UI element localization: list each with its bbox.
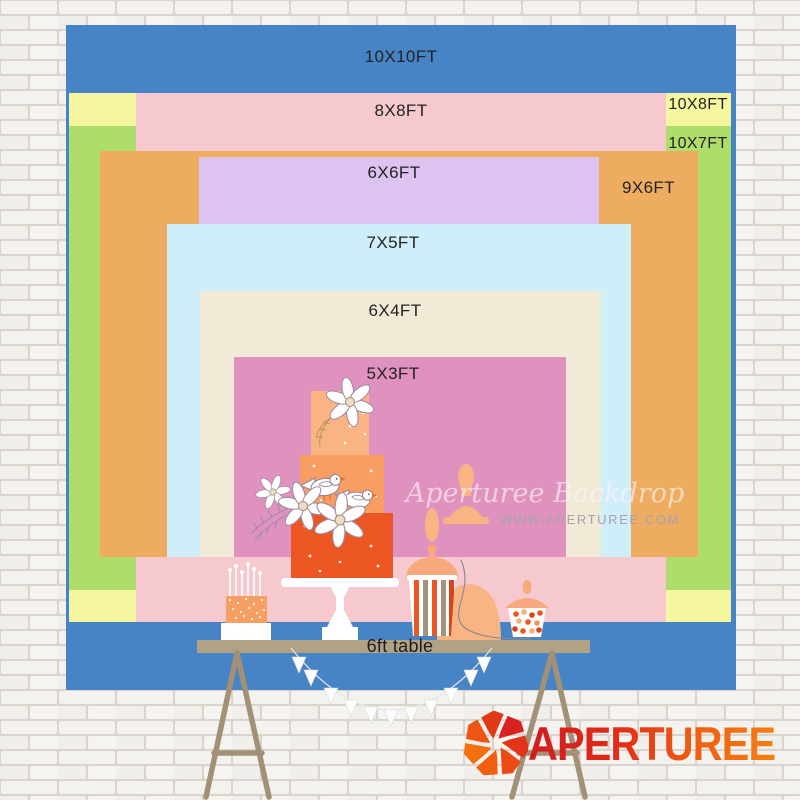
- candle-cake: [221, 562, 271, 641]
- size-label-10x10ft: 10X10FT: [66, 47, 736, 67]
- size-label-6x4ft: 6X4FT: [200, 301, 590, 321]
- size-label-5x3ft: 5X3FT: [234, 364, 552, 384]
- size-label-10x8ft: 10X8FT: [665, 96, 731, 114]
- size-label-10x7ft: 10X7FT: [665, 135, 731, 153]
- logo-wordmark: APERTUREE: [528, 711, 775, 777]
- cake-stand: [281, 578, 399, 640]
- watermark-script-text: Aperturee Backdrop: [400, 478, 690, 509]
- size-label-6x6ft: 6X6FT: [199, 163, 589, 183]
- size-label-8x8ft: 8X8FT: [136, 101, 666, 121]
- size-chart: 10X10FT 8X8FT 10X8FT 10X7FT 6X6FT 9X6FT …: [0, 0, 800, 800]
- watermark-url-text: WWW.APERTUREE.COM: [495, 512, 685, 527]
- tiered-cake: [252, 371, 399, 640]
- candy-cup: [505, 580, 549, 637]
- size-label-9x6ft: 9X6FT: [599, 178, 698, 198]
- aperturee-logo: APERTUREE: [464, 711, 800, 777]
- popcorn-box: [406, 545, 458, 637]
- table-size-label: 6ft table: [330, 636, 470, 657]
- aperture-icon: [464, 711, 528, 777]
- pennant-banner: [291, 648, 492, 726]
- size-label-7x5ft: 7X5FT: [167, 233, 619, 253]
